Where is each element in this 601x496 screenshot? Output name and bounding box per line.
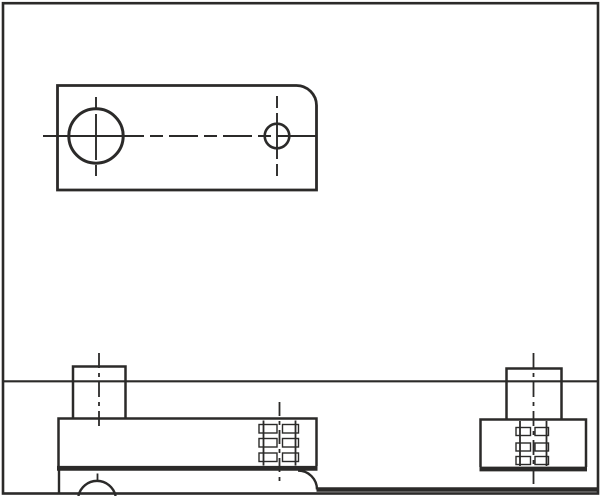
thread-dash-right-5	[516, 457, 531, 465]
thread-dash-mid-1	[259, 425, 277, 434]
thread-dash-right-3	[516, 443, 531, 451]
drawing-page	[0, 0, 601, 496]
technical-drawing	[0, 0, 601, 496]
drawing-background	[0, 0, 601, 496]
thread-dash-right-1	[516, 428, 531, 436]
thread-dash-mid-3	[259, 439, 277, 448]
thread-dash-mid-5	[259, 453, 277, 462]
